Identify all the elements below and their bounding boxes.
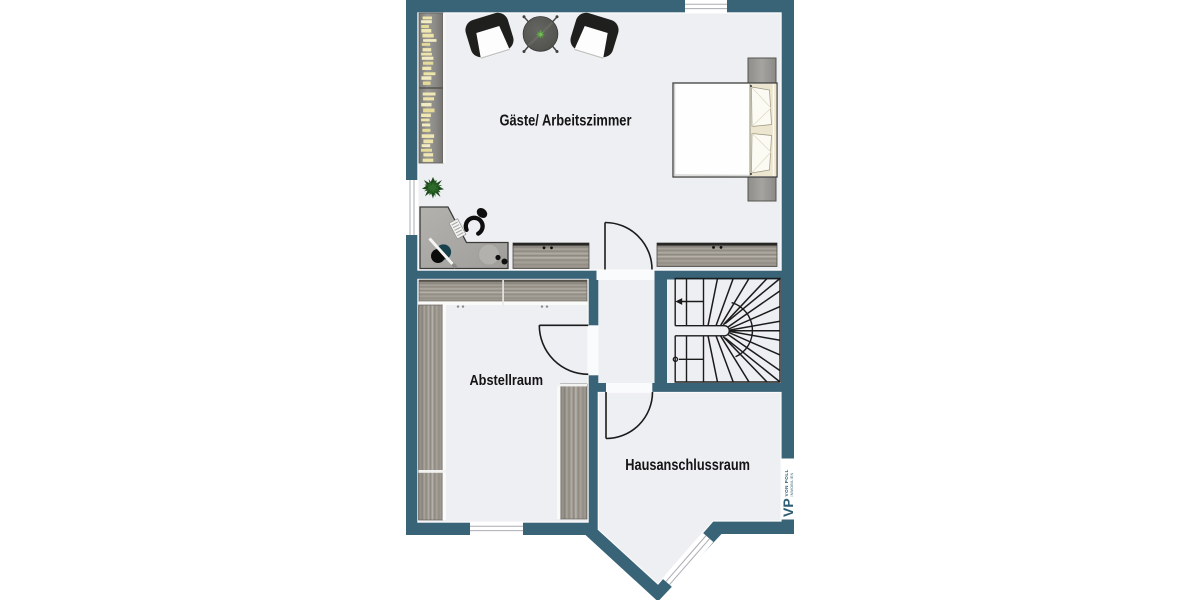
svg-text:Gäste/ Arbeitszimmer: Gäste/ Arbeitszimmer xyxy=(500,112,632,129)
svg-text:IMMOBILIEN: IMMOBILIEN xyxy=(790,472,794,496)
svg-text:VP: VP xyxy=(780,498,796,517)
svg-text:Abstellraum: Abstellraum xyxy=(470,373,544,389)
svg-text:VON POLL: VON POLL xyxy=(784,469,789,496)
svg-text:Hausanschlussraum: Hausanschlussraum xyxy=(625,457,750,474)
